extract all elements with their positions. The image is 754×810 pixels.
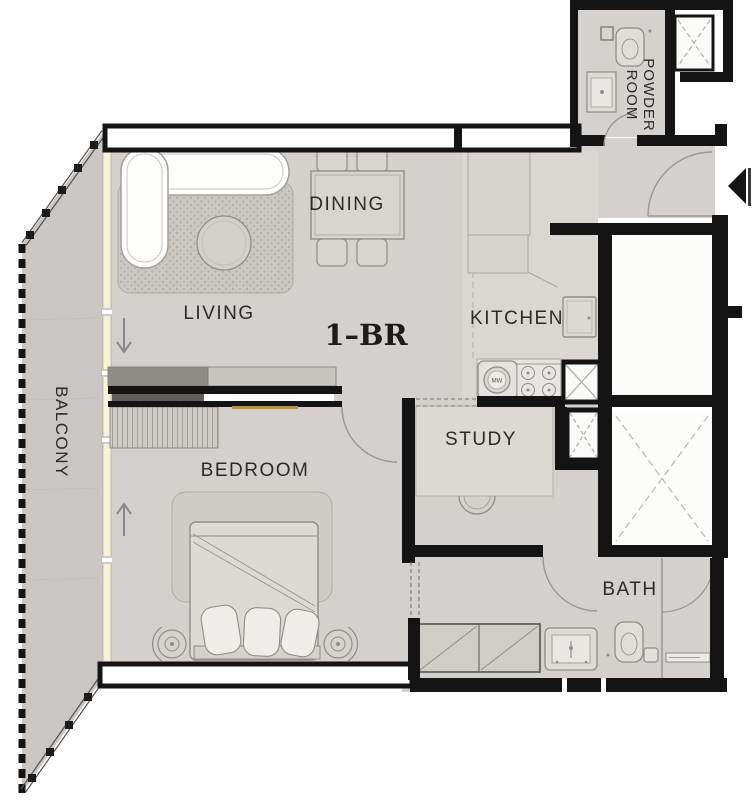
living-label: LIVING <box>183 303 254 324</box>
wall-segment <box>710 558 724 680</box>
wall-segment <box>555 407 567 465</box>
vanity-knob <box>556 661 559 664</box>
wall-segment <box>550 223 718 235</box>
lamp-dot <box>336 642 340 646</box>
tv-console-left <box>108 367 208 386</box>
entry-marker-line <box>748 168 751 206</box>
washer-label: MW <box>492 379 503 385</box>
wall-segment <box>570 8 578 147</box>
unit-type-label: 1–BR <box>324 318 408 352</box>
wall-bottom-cavity <box>100 664 412 686</box>
wall-segment <box>598 407 612 557</box>
wall-segment <box>410 678 727 692</box>
kitchen-counter-mid <box>468 235 528 273</box>
pillows <box>199 603 321 658</box>
wall-joint <box>454 126 462 150</box>
media-wall-bar <box>108 386 342 394</box>
media-wall-bar <box>108 401 342 407</box>
entry-marker <box>728 168 751 206</box>
wall-segment <box>665 10 675 137</box>
wall-segment <box>477 396 565 407</box>
tv-console-right <box>208 367 336 386</box>
wall-segment <box>402 545 543 557</box>
wall-segment <box>712 318 728 558</box>
wall-top-cavity <box>105 126 579 150</box>
dining-label: DINING <box>309 194 385 215</box>
dining-chair <box>317 239 347 266</box>
wall-segment <box>408 618 420 680</box>
wall-segment <box>598 545 728 557</box>
coffee-table <box>197 216 251 270</box>
powder-room-label-line2: ROOM <box>623 70 640 121</box>
wall-segment <box>598 235 612 407</box>
dining-chair <box>357 239 387 266</box>
wall-segment <box>637 135 727 146</box>
floor-plan-drawing: MW <box>0 0 754 810</box>
wall-joint-gap <box>562 678 567 692</box>
study-desk <box>416 406 553 496</box>
media-wall-insert <box>112 394 204 401</box>
wall-segment <box>718 306 742 318</box>
floor-plan: MW <box>0 0 754 810</box>
media-wall-wood-accent <box>232 406 298 409</box>
entry-door-marker-icon <box>728 168 746 204</box>
wall-segment <box>723 0 733 82</box>
wall-segment <box>598 395 728 407</box>
wall-segment <box>402 398 415 563</box>
mid-shaft <box>567 410 600 460</box>
waste-bin <box>644 648 658 662</box>
powder-toilet <box>616 28 644 66</box>
powder-drain <box>649 30 652 33</box>
tp-holder <box>601 27 613 40</box>
balcony-label: BALCONY <box>52 386 71 478</box>
bath-label: BATH <box>602 579 657 600</box>
vanity-drain <box>569 646 573 650</box>
fridge-handle <box>588 317 591 320</box>
bedroom-label: BEDROOM <box>201 460 310 481</box>
fridge <box>563 297 596 337</box>
living-furniture <box>118 148 293 293</box>
wall-segment <box>715 124 727 146</box>
lamp-dot <box>170 642 174 646</box>
study-label: STUDY <box>445 429 517 450</box>
wall-joint-gap <box>601 678 606 692</box>
void-room <box>612 235 712 395</box>
powder-sink-drain <box>600 90 604 94</box>
wall-segment <box>578 135 605 146</box>
floor-drain <box>607 654 610 657</box>
kitchen-label: KITCHEN <box>470 308 564 329</box>
wardrobe-hatched <box>110 407 218 448</box>
wall-segment <box>570 0 733 10</box>
vanity-knob <box>585 661 588 664</box>
powder-room-label-line1: POWDER <box>640 58 657 132</box>
toilet <box>615 622 643 662</box>
wall-segment <box>680 72 733 82</box>
kitchen-counter-upper <box>468 152 530 235</box>
wall-segment <box>555 458 603 470</box>
